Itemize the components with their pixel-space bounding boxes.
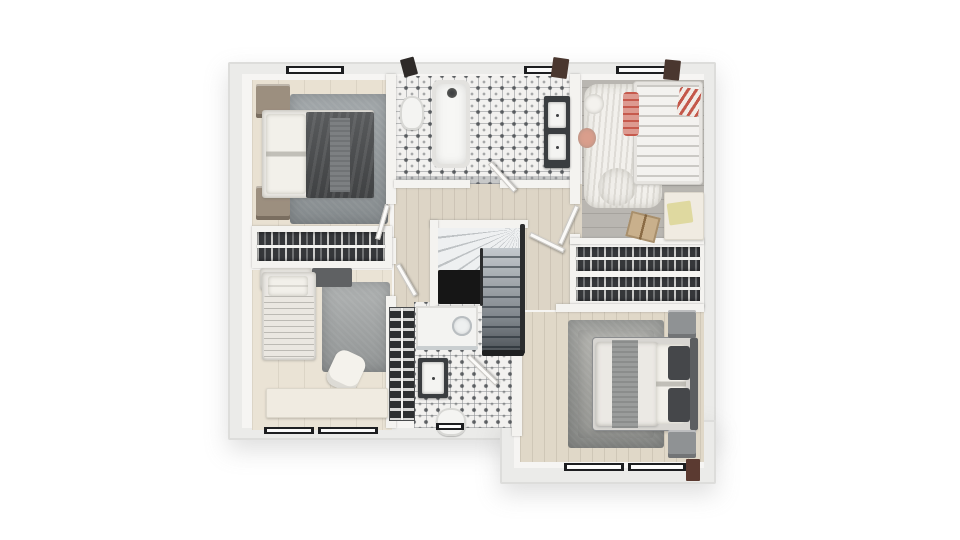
stairs-void-opening [438,270,482,304]
nursery-pouf-pink [578,128,596,148]
wall-bathroom-main-bottom-left [394,180,470,188]
bedroom2-blanket [264,296,314,358]
wall-ensuite-master [512,350,522,436]
nursery-book [667,200,694,225]
screenshot-canvas [0,0,960,540]
window-bottom-master-b [628,463,686,471]
stairs-rail-mid [480,248,483,306]
master-throw [612,340,638,428]
crib-striped-pillow [676,87,702,118]
window-shade-right [663,59,681,81]
stairs-left-wall [430,220,438,312]
window-top-bedroom1 [286,66,344,74]
nursery-rug-blob [598,168,636,206]
master-pillow-dark-1 [668,346,690,380]
window-post-master [686,459,700,481]
ensuite-shower-glass [416,346,478,350]
bedroom2-bench [312,268,352,287]
vanity-sink-2 [548,134,566,160]
master-nightstand-top [668,310,696,338]
stairs-bottom-edge [482,350,524,356]
dressing-rail-row1 [576,257,700,260]
crib-blanket-roll [623,92,639,136]
window-bottom-master-a [564,463,624,471]
window-bottom-bedroom2-a [264,427,314,434]
ensuite-shelf-divider [401,308,403,420]
master-nightstand-bottom [668,430,696,458]
dressing-rail-row2 [576,287,700,290]
stairs-flight [482,248,520,352]
stairs-rail-right [520,224,525,354]
stairs-top-wall [430,220,528,228]
window-bottom-bedroom2-b [318,427,378,434]
vanity-sink-1 [548,102,566,128]
bedroom1-pillows [266,114,306,194]
master-pillow-dark-2 [668,388,690,422]
closet-left-rail [257,245,385,248]
nursery-pouf-white [584,94,604,114]
toilet-main [400,96,424,130]
bath-fixture [447,88,457,98]
ensuite-sink-basin [422,362,444,394]
window-bottom-ensuite [436,423,464,430]
ensuite-shower-drain [452,316,472,336]
master-headboard [690,338,698,430]
bedroom2-pillow [268,276,308,296]
ensuite-toilet [436,408,466,436]
floorplan-render [0,0,960,540]
window-shade-mid [551,57,570,79]
bedroom1-blanket-fold [330,118,350,192]
bedroom2-desk [266,388,388,418]
